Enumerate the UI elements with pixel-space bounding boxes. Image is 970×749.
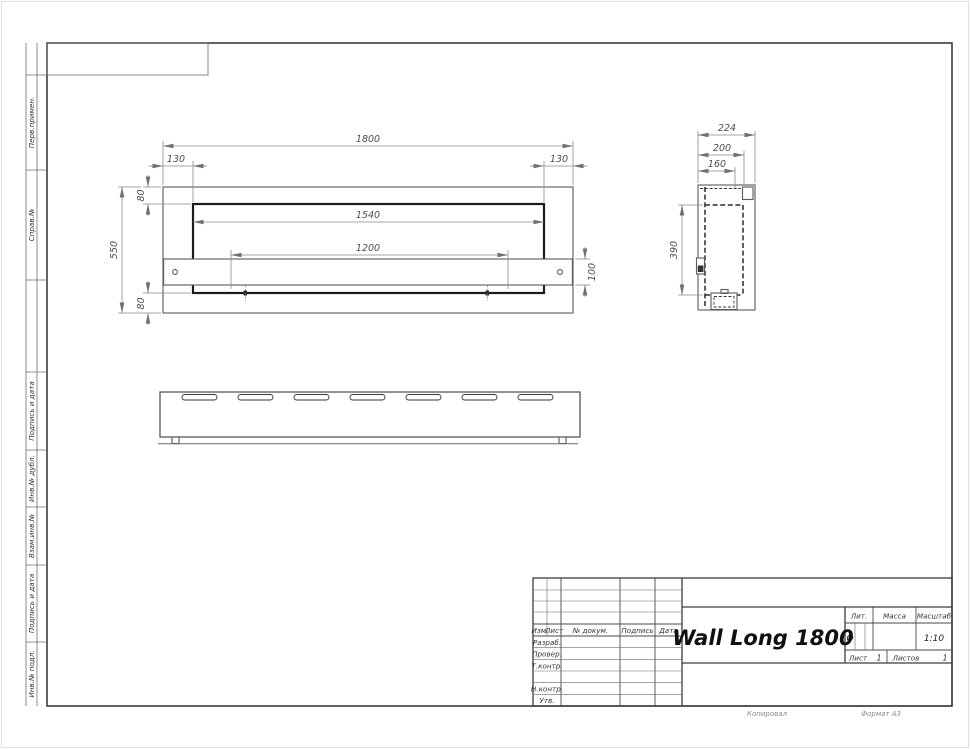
margin-label-podpis-data-1: Подпись и дата xyxy=(27,381,36,441)
side-dim-depth: 224 xyxy=(718,123,736,134)
front-dim-height: 550 xyxy=(109,241,120,259)
row-checked: Провер. xyxy=(532,650,562,659)
sheet-label: Лист xyxy=(848,654,868,663)
row-ncontrol: Н.контр. xyxy=(531,685,563,694)
bottom-foot-right xyxy=(559,437,566,444)
bottom-foot-left xyxy=(172,437,179,444)
front-view: 1800 130 130 80 550 1540 1200 xyxy=(109,134,598,325)
margin-label-sprav-no: Справ.№ xyxy=(27,209,36,242)
side-view: 224 200 160 390 xyxy=(669,123,755,310)
front-dim-width: 1800 xyxy=(356,134,380,145)
side-bracket xyxy=(743,187,754,200)
copied-label: Копировал xyxy=(747,710,788,718)
front-shelf-band xyxy=(164,259,573,285)
sheets-label: Листов xyxy=(892,654,920,663)
margin-label-vzam-inv: Взам.инв.№ xyxy=(27,514,36,558)
front-dim-shelf: 100 xyxy=(587,263,598,281)
col-list: Лист xyxy=(544,626,564,635)
title-block: Изм. Лист № докум. Подпись Дата Разраб. … xyxy=(531,578,952,706)
side-dim-bracket: 160 xyxy=(708,159,726,170)
side-outer-body xyxy=(698,185,755,310)
front-dim-top: 80 xyxy=(136,189,147,201)
side-dim-opening-height: 390 xyxy=(669,241,680,259)
front-dim-bottom: 80 xyxy=(136,297,147,309)
left-margin: Перв.примен. Справ.№ Подпись и дата Инв.… xyxy=(26,43,47,706)
sheets-value: 1 xyxy=(943,654,948,663)
side-dim-inner: 200 xyxy=(713,143,731,154)
margin-label-inv-podl: Инв.№ подл. xyxy=(27,650,36,697)
lit-label: Лит. xyxy=(850,612,868,621)
col-doc: № докум. xyxy=(572,626,608,635)
front-dim-offset-right: 130 xyxy=(550,154,568,165)
scale-value: 1:10 xyxy=(924,634,944,644)
engineering-drawing: Перв.примен. Справ.№ Подпись и дата Инв.… xyxy=(0,0,970,749)
margin-label-podpis-data-2: Подпись и дата xyxy=(27,574,36,634)
margin-label-inv-dubl: Инв.№ дубл. xyxy=(27,455,36,502)
mass-label: Масса xyxy=(883,612,906,621)
margin-label-perv-primen: Перв.примен. xyxy=(27,97,36,149)
drawing-sheet: Перв.примен. Справ.№ Подпись и дата Инв.… xyxy=(0,0,970,749)
front-hole-right xyxy=(558,270,563,275)
row-tcontrol: Т.контр. xyxy=(531,661,562,670)
top-left-stamp-box xyxy=(47,43,208,75)
bottom-view xyxy=(158,392,580,444)
front-dim-opening: 1540 xyxy=(356,210,380,221)
front-dim-burner: 1200 xyxy=(356,243,380,254)
front-dim-offset-left: 130 xyxy=(167,154,185,165)
document-title: Wall Long 1800 xyxy=(672,626,853,650)
front-hole-left xyxy=(173,270,178,275)
format-label: Формат А3 xyxy=(861,710,901,718)
lit-value: О xyxy=(846,634,853,644)
row-developed: Разраб. xyxy=(533,638,561,647)
row-approved: Утв. xyxy=(539,696,554,705)
scale-label: Масштаб xyxy=(917,612,952,621)
col-sign: Подпись xyxy=(621,626,653,635)
sheet-value: 1 xyxy=(877,654,882,663)
